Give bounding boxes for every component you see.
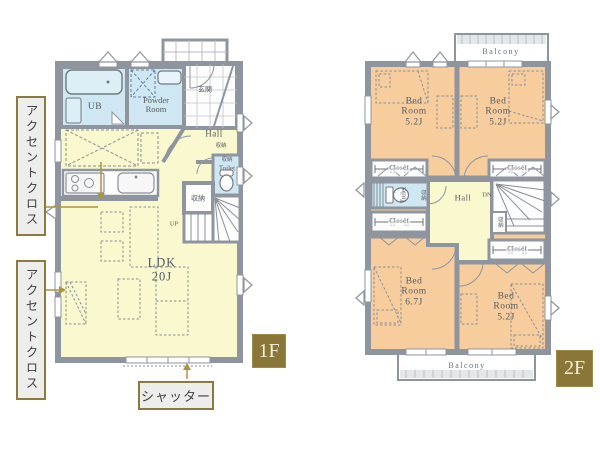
room-storage-1f bbox=[184, 183, 213, 213]
floor-2f-plan bbox=[356, 34, 559, 380]
kitchen-sink-icon bbox=[118, 173, 154, 193]
room-genkan bbox=[184, 64, 237, 128]
balcony-bottom bbox=[398, 352, 535, 380]
floor-1f-plan bbox=[42, 40, 252, 379]
balcony-top bbox=[455, 34, 548, 62]
kitchen-counter bbox=[61, 170, 158, 201]
shutter-note: シャッター bbox=[138, 381, 214, 410]
toilet-icon bbox=[386, 187, 409, 203]
floorplan-canvas: UB PowderRoom 玄関 Hall 収納 収納 Toilet 収納 UP… bbox=[0, 0, 600, 449]
floorplan-drawing bbox=[0, 0, 600, 449]
entrance-porch bbox=[163, 40, 227, 64]
stairs-down bbox=[492, 180, 545, 233]
shutter-arrow bbox=[183, 363, 191, 379]
accent-cloth-note-1: アクセントクロス bbox=[16, 96, 46, 236]
stove-icon bbox=[66, 173, 104, 193]
floor-1f-badge: 1F bbox=[252, 334, 286, 368]
toilet-icon bbox=[220, 170, 233, 191]
accent-cloth-note-2: アクセントクロス bbox=[16, 260, 46, 400]
floor-2f-badge: 2F bbox=[556, 350, 593, 387]
vanity-sink-icon bbox=[158, 71, 181, 84]
